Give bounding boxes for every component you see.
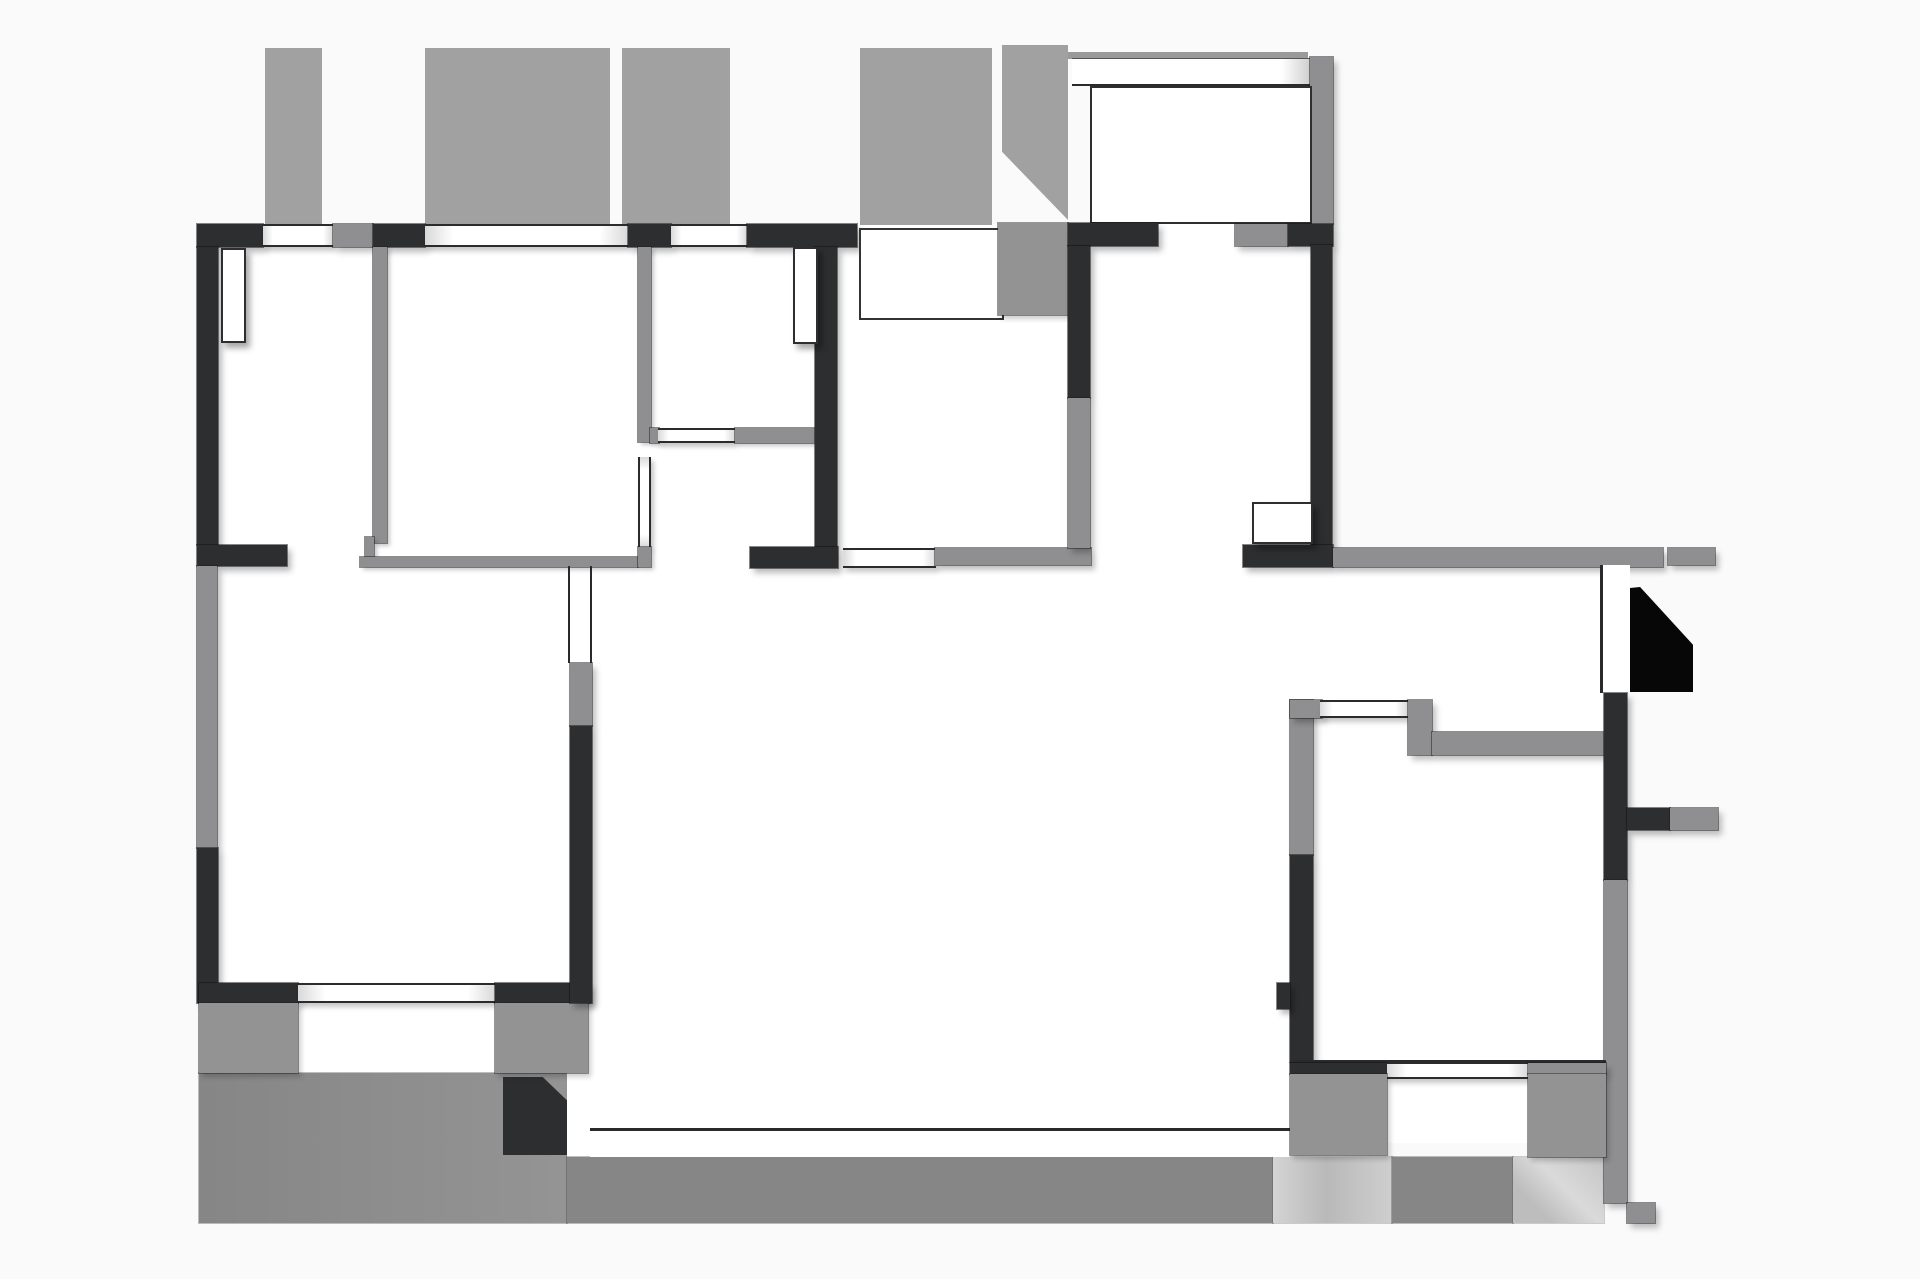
kitchen-left-wall-gray [1290, 700, 1313, 855]
bottom-strip-1 [567, 1157, 1273, 1223]
divider-notch [365, 537, 374, 557]
top-wall-gray-block [1235, 224, 1288, 246]
top-wall-window-3 [671, 224, 747, 247]
upper-stripe-3 [622, 48, 730, 225]
top-wall-window-1 [263, 224, 333, 247]
upper-stripe-2 [425, 48, 610, 225]
bed3-door-line-right [590, 566, 592, 663]
porch-interior [1090, 86, 1312, 224]
upper-stripe-4 [860, 48, 992, 225]
bed2-right-wall-opening [638, 457, 651, 547]
kitchen-left-wall-dark [1290, 855, 1313, 1062]
bottom-strip-4 [1513, 1157, 1604, 1223]
kitchen-bottom-window [1387, 1062, 1528, 1079]
room-bedroom-bottom-left [197, 545, 592, 1003]
bed2-bottom-wall [360, 557, 638, 567]
hall-right-wall [1311, 245, 1332, 547]
foyer-bottom-window [843, 548, 936, 568]
porch-left-column [1002, 45, 1068, 220]
bath2-closet-wall [735, 428, 815, 443]
bed3-right-wall-gray [570, 663, 592, 726]
left-wall-lower [197, 848, 218, 1003]
left-wall-mid-gray [197, 566, 217, 848]
divider-bed1-bed2 [373, 247, 387, 543]
entry-step-black [1630, 587, 1693, 692]
right-ledge-mid-gray [1670, 808, 1718, 830]
room-living [560, 548, 1290, 1157]
living-bottom-line [590, 1128, 1290, 1131]
kitchen-bottom-block-left [1290, 1074, 1387, 1155]
kitchen-right-wall-dark [1604, 693, 1627, 880]
kitchen-right-wall-gray [1604, 880, 1627, 1203]
left-wall-stub [197, 545, 287, 566]
room-vestibule [1243, 548, 1604, 703]
bed3-right-wall-dark [570, 726, 592, 1003]
kitchen-bottom-block-right [1528, 1074, 1606, 1157]
kitchen-bottom-wall-right [1528, 1063, 1606, 1074]
bottom-strip-2 [1273, 1157, 1392, 1223]
porch-right-wall [1310, 57, 1333, 224]
lightwell-block-right [495, 1003, 588, 1073]
kitchen-top-step [1408, 700, 1432, 755]
kitchen-top-wall-left [1290, 700, 1322, 718]
vestibule-right-channel [1603, 565, 1630, 693]
top-wall-seg-6 [1288, 224, 1333, 246]
right-ledge-mid-dark [1627, 808, 1670, 830]
top-wall-seg-5 [1068, 223, 1158, 246]
room-top-band [197, 224, 1333, 548]
upper-stripe-1 [265, 48, 322, 225]
bottom-strip-3 [1392, 1157, 1513, 1223]
foyer-bottom-wall [935, 548, 1091, 565]
kitchen-top-window [1320, 700, 1408, 718]
bottom-left-window [298, 983, 495, 1003]
left-wall-upper [197, 247, 218, 545]
terrace-white-channel [567, 1073, 590, 1157]
kitchen-bottom-wall-left [1290, 1063, 1387, 1074]
foyer-right-wall-gray [1068, 398, 1090, 548]
bottom-left-wall-1 [199, 983, 298, 1003]
bed2-right-wall-foot [638, 547, 651, 567]
right-ledge-top [1668, 548, 1715, 565]
foyer-right-wall-dark [1068, 246, 1090, 398]
top-wall-seg-2 [373, 224, 425, 247]
top-wall-seg-3 [628, 224, 671, 247]
floor-plan [0, 0, 1920, 1279]
bed2-right-wall-upper [638, 247, 651, 442]
top-wall-window-2 [425, 224, 628, 247]
living-bottom-white-band [590, 1131, 1290, 1157]
hall-door-leaf [1252, 502, 1313, 544]
top-wall-seg-4 [747, 224, 857, 247]
kitchen-bottom-jag-tab [1627, 1203, 1655, 1223]
center-wall-bottom [750, 547, 838, 568]
porch-top-wall [1072, 58, 1310, 86]
room-kitchen-window-bay [1387, 1078, 1528, 1143]
entry-gray-square [998, 223, 1068, 315]
kitchen-left-tab [1277, 983, 1290, 1009]
pilaster-bathroom [793, 247, 818, 344]
center-wall-vertical [815, 247, 837, 547]
bed3-door-line-left [568, 566, 570, 663]
top-wall-post [333, 224, 373, 247]
bath2-closet-window [658, 428, 735, 443]
entry-alcove [859, 228, 1004, 320]
hall-bottom-wall [1243, 545, 1333, 567]
top-wall-seg-1 [197, 224, 263, 247]
pilaster-bedroom1 [221, 248, 246, 343]
lightwell-block-left [199, 1003, 298, 1073]
kitchen-top-wall-right [1432, 732, 1606, 755]
